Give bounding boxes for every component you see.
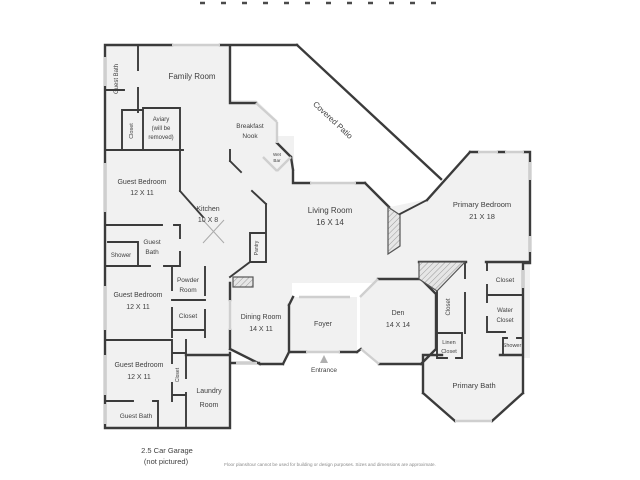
closet-5-label: Closet [496,277,515,284]
linen-closet-label-1: Linen [442,340,455,346]
closet-2-label: Closet [179,313,198,320]
garage-note-1: 2.5 Car Garage [141,446,193,455]
water-closet-label-1: Water [497,308,513,314]
floor-plan: Family Room Guest Bath Closet Aviary (wi… [0,0,640,480]
primary-bedroom-dims: 21 X 18 [469,212,495,221]
guest-bedroom-2-dims: 12 X 11 [126,304,150,311]
water-closet-label-2: Closet [496,318,513,324]
entrance-label: Entrance [311,367,337,374]
living-room-dims: 16 X 14 [316,218,344,227]
guest-bath-2-label-2: Bath [145,249,159,256]
guest-bedroom-1-dims: 12 X 11 [130,190,154,197]
guest-bedroom-3-dims: 12 X 11 [127,374,151,381]
guest-bath-3-label: Guest Bath [120,413,153,420]
wet-bar-label-1: Wet [273,152,282,157]
dining-niche [233,277,253,287]
fireplace [388,207,400,254]
pantry-label: Pantry [254,240,260,255]
closet-3-label: Closet [175,367,181,382]
living-room-label: Living Room [308,206,353,215]
aviary-label-3: removed) [148,135,173,141]
dining-room-label: Dining Room [241,314,282,321]
breakfast-nook-label-2: Nook [242,133,258,140]
aviary-label-1: Aviary [153,117,170,123]
guest-bedroom-3-label: Guest Bedroom [114,362,163,369]
covered-patio-label: Covered Patio [311,100,355,142]
powder-room-label-2: Room [179,287,196,294]
primary-bath-label: Primary Bath [452,381,495,390]
closet-1-label: Closet [129,123,135,139]
primary-bedroom-label: Primary Bedroom [453,200,511,209]
floor-plan-page: Family Room Guest Bath Closet Aviary (wi… [0,0,640,480]
foyer-label: Foyer [314,321,333,328]
closet-4-label: Closet [446,298,452,315]
aviary-label-2: (will be [152,126,171,132]
laundry-room-label-1: Laundry [196,388,222,395]
guest-bedroom-2-label: Guest Bedroom [113,292,162,299]
entrance-arrow-icon [320,355,328,363]
disclaimer-text: Floor plans/tour cannot be used for buil… [224,462,436,467]
kitchen-label: Kitchen [196,206,219,213]
guest-bath-1-label: Guest Bath [114,64,120,94]
guest-bedroom-1-label: Guest Bedroom [117,179,166,186]
wet-bar-label-2: Bar [273,158,281,163]
garage-note-2: (not pictured) [144,457,189,466]
linen-closet-label-2: Closet [441,349,457,355]
dining-room-dims: 14 X 11 [249,326,273,333]
shower-1-label: Shower [111,253,131,259]
powder-room-label-1: Powder [177,277,200,284]
den-dims: 14 X 14 [386,322,410,329]
breakfast-nook-label-1: Breakfast [236,123,264,130]
kitchen-dims: 10 X 8 [198,217,218,224]
guest-bath-2-label-1: Guest [143,239,161,246]
family-room-label: Family Room [168,72,215,81]
den-label: Den [392,310,405,317]
shower-2-label: Shower [503,343,522,349]
laundry-room-label-2: Room [200,402,219,409]
